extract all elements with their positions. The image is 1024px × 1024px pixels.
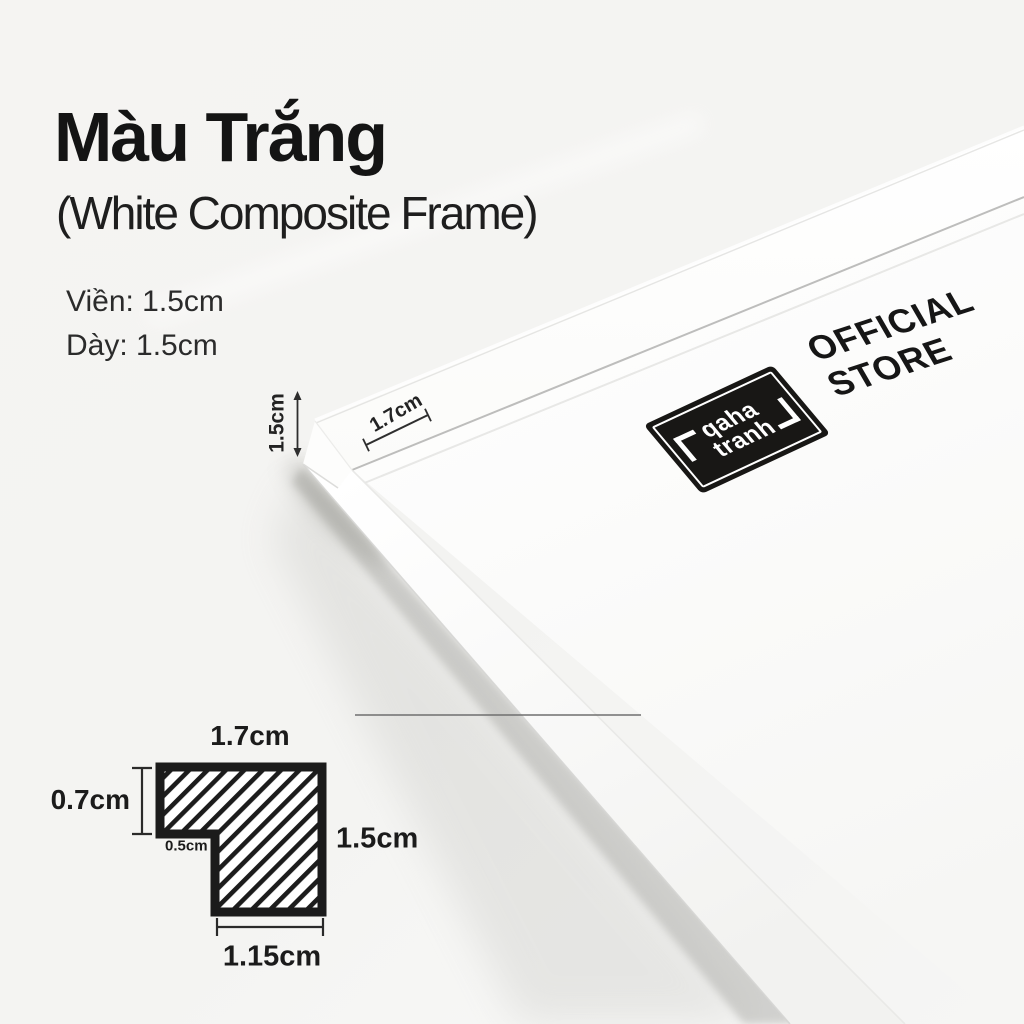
spec-border-width: Viền: 1.5cm xyxy=(66,287,224,317)
page-subtitle: (White Composite Frame) xyxy=(56,188,537,239)
depth-dimension-label: 1.5cm xyxy=(267,393,288,453)
product-spec-image: Màu Trắng (White Composite Frame) Viền: … xyxy=(0,0,1024,1024)
section-right-height-label: 1.5cm xyxy=(336,825,418,854)
section-left-height-label: 0.7cm xyxy=(51,786,130,814)
section-bottom-width-label: 1.15cm xyxy=(223,943,321,972)
page-title: Màu Trắng xyxy=(54,102,386,172)
section-step-width-label: 0.5cm xyxy=(165,839,208,854)
section-top-width-label: 1.7cm xyxy=(210,722,289,750)
spec-thickness: Dày: 1.5cm xyxy=(66,331,218,361)
